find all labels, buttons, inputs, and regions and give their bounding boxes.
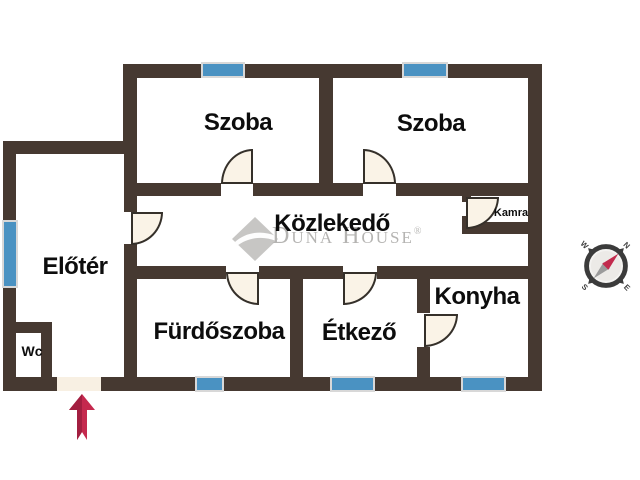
- entrance-arrow-icon: [69, 394, 95, 440]
- wall: [319, 78, 333, 183]
- window-marker: [461, 376, 506, 392]
- room-label-etkezo: Étkező: [322, 319, 396, 347]
- wall: [3, 141, 137, 154]
- wall: [123, 64, 542, 78]
- window-marker: [195, 376, 224, 392]
- wall: [417, 347, 430, 391]
- compass-icon: N S W E: [572, 232, 640, 300]
- room-label-szoba-right: Szoba: [397, 110, 465, 138]
- window-marker: [2, 220, 18, 288]
- wall: [528, 64, 542, 391]
- door-arc: [131, 212, 163, 245]
- window-marker: [330, 376, 375, 392]
- wall: [3, 287, 16, 391]
- wall: [290, 266, 303, 391]
- wall: [137, 266, 226, 279]
- wall: [3, 141, 16, 221]
- wall: [396, 183, 528, 196]
- wall: [124, 154, 137, 212]
- room-label-eloter: Előtér: [42, 253, 107, 281]
- door-arc: [221, 149, 253, 184]
- compass-label-south: S: [580, 282, 590, 292]
- wall: [377, 266, 528, 279]
- room-label-kamra: Kamra: [494, 207, 528, 219]
- front-door: [57, 377, 101, 391]
- door-arc: [424, 314, 458, 347]
- wall: [101, 377, 196, 391]
- room-label-szoba-left: Szoba: [204, 109, 272, 137]
- floorplan-canvas: Duna House® Szoba Szoba Közlekedő Kamra …: [0, 0, 640, 480]
- window-marker: [201, 62, 245, 78]
- registered-mark: ®: [414, 226, 422, 237]
- window-marker: [402, 62, 448, 78]
- wall: [124, 244, 137, 391]
- compass-label-east: E: [622, 283, 632, 293]
- wall: [253, 183, 363, 196]
- door-arc: [363, 149, 396, 184]
- wall: [137, 183, 221, 196]
- room-label-kozlekedo: Közlekedő: [274, 210, 390, 238]
- wall: [417, 266, 430, 313]
- wall: [223, 377, 331, 391]
- room-label-wc: Wc: [22, 343, 43, 359]
- door-arc: [226, 272, 259, 305]
- room-label-konyha: Konyha: [434, 283, 519, 311]
- wall: [41, 322, 52, 391]
- room-label-furdoszoba: Fürdőszoba: [154, 318, 285, 346]
- wall: [505, 377, 542, 391]
- door-arc: [343, 272, 377, 305]
